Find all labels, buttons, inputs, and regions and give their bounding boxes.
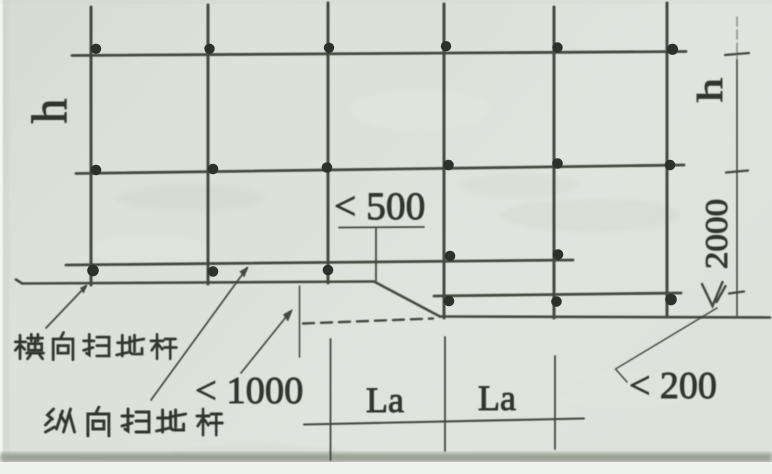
svg-text:La: La	[366, 380, 404, 420]
svg-text:< 1000: < 1000	[195, 370, 303, 412]
svg-text:< 500: < 500	[334, 184, 425, 228]
svg-text:< 200: < 200	[629, 365, 717, 407]
svg-text:h: h	[21, 99, 77, 124]
svg-text:h: h	[691, 78, 731, 102]
svg-text:2000: 2000	[699, 199, 734, 269]
svg-text:La: La	[478, 378, 516, 418]
